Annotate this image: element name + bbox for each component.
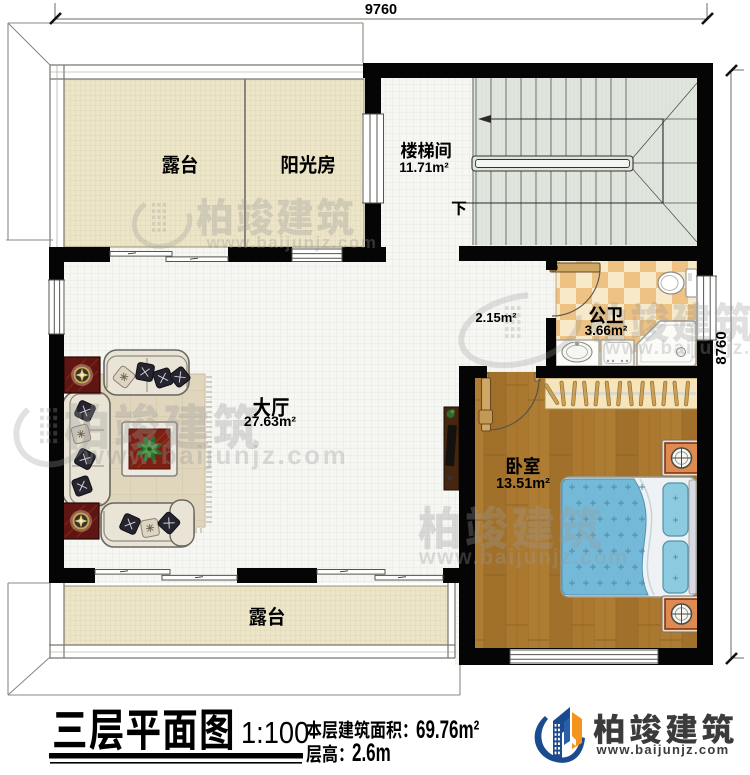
svg-text:www.baijunjz.com: www.baijunjz.com	[206, 233, 378, 252]
svg-text:11.71m²: 11.71m²	[399, 160, 449, 175]
svg-text:www.baijunjz.com: www.baijunjz.com	[83, 440, 348, 470]
svg-text:8760: 8760	[713, 331, 730, 364]
svg-text:1:100: 1:100	[241, 716, 309, 750]
svg-text:27.63m²: 27.63m²	[244, 413, 296, 429]
svg-text:3.66m²: 3.66m²	[585, 323, 628, 338]
svg-text:www.baijunjz.com: www.baijunjz.com	[418, 546, 629, 569]
svg-text:2.15m²: 2.15m²	[475, 310, 517, 325]
svg-text:13.51m²: 13.51m²	[496, 476, 550, 492]
svg-text:9760: 9760	[365, 2, 397, 18]
svg-text:69.76m²: 69.76m²	[416, 716, 479, 744]
svg-text:www.baijunjz.com: www.baijunjz.com	[596, 742, 730, 757]
svg-text:2.6m: 2.6m	[352, 739, 391, 767]
